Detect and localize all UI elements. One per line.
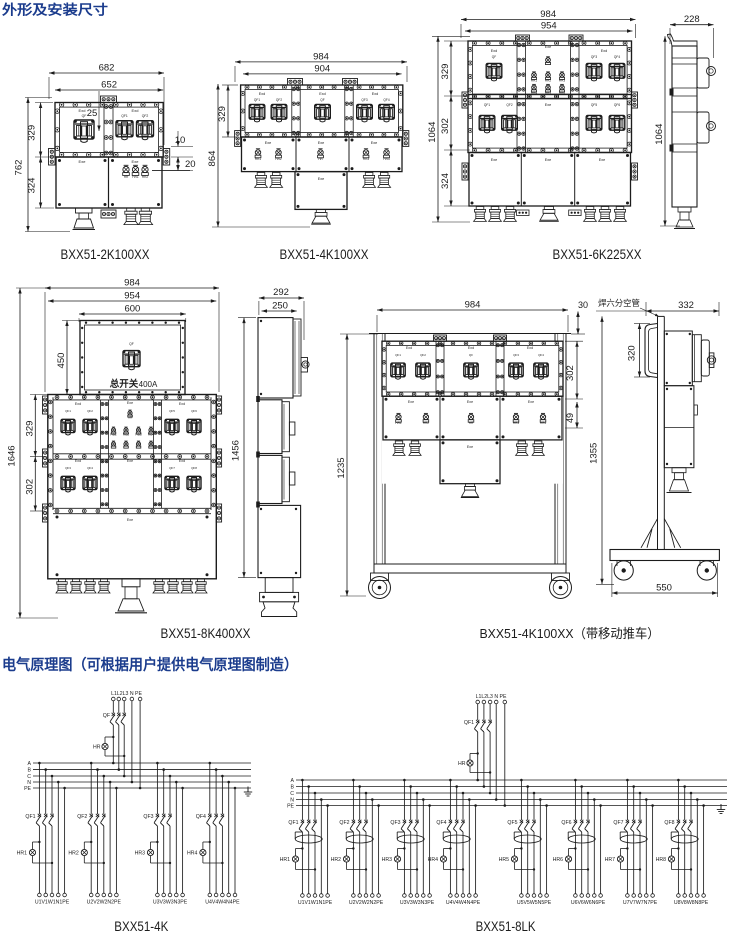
svg-text:U2V2W2N2PE: U2V2W2N2PE: [349, 900, 384, 906]
svg-text:HR2: HR2: [423, 421, 430, 425]
svg-text:QF: QF: [103, 713, 110, 719]
svg-text:25: 25: [87, 108, 98, 119]
svg-text:652: 652: [101, 80, 117, 91]
svg-text:HR5: HR5: [499, 857, 509, 863]
svg-text:HR1: HR1: [132, 175, 139, 179]
svg-text:HR2: HR2: [331, 857, 341, 863]
svg-text:QF3: QF3: [143, 814, 153, 820]
svg-text:HR6: HR6: [553, 857, 563, 863]
svg-text:Exe: Exe: [127, 518, 133, 522]
svg-text:外形及安装尺寸: 外形及安装尺寸: [2, 2, 108, 18]
svg-text:Exd: Exd: [319, 92, 326, 96]
svg-text:1235: 1235: [336, 457, 347, 478]
svg-text:BXX51-4K100XX: BXX51-4K100XX: [280, 246, 370, 262]
svg-text:电气原理图（可根据用户提供电气原理图制造）: 电气原理图（可根据用户提供电气原理图制造）: [2, 656, 298, 674]
svg-text:Exd: Exd: [75, 459, 81, 463]
svg-text:QF6: QF6: [561, 820, 571, 826]
svg-text:QF5: QF5: [507, 820, 517, 826]
svg-text:302: 302: [24, 479, 35, 495]
svg-text:1064: 1064: [654, 124, 665, 145]
svg-text:QF3: QF3: [390, 820, 400, 826]
svg-text:QF3: QF3: [65, 466, 71, 470]
svg-text:QF2: QF2: [420, 353, 426, 357]
svg-text:Exe: Exe: [528, 400, 534, 404]
svg-text:HR: HR: [93, 745, 101, 751]
svg-text:HR3: HR3: [559, 78, 566, 82]
svg-text:QF5: QF5: [169, 409, 175, 413]
svg-text:324: 324: [26, 178, 37, 194]
svg-text:BXX51-6K225XX: BXX51-6K225XX: [553, 246, 643, 262]
svg-text:A: A: [291, 778, 295, 784]
svg-text:Exd: Exd: [132, 108, 139, 113]
svg-text:HR4: HR4: [531, 91, 538, 95]
svg-text:QF4: QF4: [87, 466, 93, 470]
svg-text:HR5: HR5: [545, 91, 552, 95]
svg-text:QF3: QF3: [591, 55, 597, 59]
svg-text:QF1: QF1: [65, 409, 71, 413]
svg-text:QF6: QF6: [614, 103, 620, 107]
svg-text:Exe: Exe: [491, 158, 498, 162]
svg-text:QF2: QF2: [77, 814, 87, 820]
svg-text:1064: 1064: [427, 122, 438, 143]
svg-text:U4V4W4N4PE: U4V4W4N4PE: [446, 900, 481, 906]
svg-text:U1V1W1N1PE: U1V1W1N1PE: [298, 900, 333, 906]
svg-text:1646: 1646: [7, 445, 18, 466]
svg-text:HR4: HR4: [187, 851, 197, 857]
svg-text:QF4: QF4: [538, 353, 544, 357]
svg-text:Exe: Exe: [371, 141, 378, 145]
svg-text:HR8: HR8: [656, 857, 666, 863]
svg-text:BXX51-4K: BXX51-4K: [114, 918, 169, 932]
svg-text:QF1: QF1: [464, 720, 474, 726]
svg-text:Exd: Exd: [491, 49, 498, 53]
svg-text:302: 302: [565, 365, 576, 381]
svg-text:QF2: QF2: [87, 409, 93, 413]
svg-text:Exe: Exe: [132, 159, 140, 164]
svg-text:HB2: HB2: [123, 433, 129, 437]
svg-text:QF4: QF4: [383, 98, 389, 102]
svg-text:B: B: [291, 785, 295, 791]
svg-text:QF: QF: [492, 55, 496, 59]
svg-text:1456: 1456: [231, 440, 242, 461]
svg-text:QF4: QF4: [196, 814, 206, 820]
svg-text:C: C: [290, 791, 294, 797]
svg-text:Exe: Exe: [467, 445, 473, 449]
svg-text:HR1: HR1: [255, 157, 262, 161]
svg-text:BXX51-2K100XX: BXX51-2K100XX: [61, 246, 151, 262]
svg-text:QF1: QF1: [121, 114, 128, 118]
svg-text:HR1: HR1: [395, 421, 402, 425]
svg-text:QF3: QF3: [361, 98, 367, 102]
svg-text:HR2: HR2: [275, 157, 282, 161]
svg-text:U3V3W3N3PE: U3V3W3N3PE: [153, 900, 188, 906]
svg-text:Exd: Exd: [372, 92, 379, 96]
svg-text:B: B: [28, 768, 32, 774]
svg-text:984: 984: [465, 300, 481, 311]
svg-text:QF2: QF2: [142, 114, 149, 118]
svg-text:550: 550: [656, 583, 672, 594]
svg-text:HR3: HR3: [513, 421, 520, 425]
svg-text:Exd: Exd: [259, 92, 266, 96]
svg-text:HB3: HB3: [135, 433, 141, 437]
svg-text:10: 10: [175, 135, 186, 146]
svg-text:984: 984: [124, 278, 140, 289]
svg-text:HR2: HR2: [142, 175, 149, 179]
svg-text:320: 320: [627, 345, 638, 361]
svg-text:QF1: QF1: [288, 820, 298, 826]
svg-text:329: 329: [24, 421, 35, 437]
svg-text:HR2: HR2: [545, 78, 552, 82]
svg-text:HR: HR: [318, 157, 323, 161]
svg-text:HR3: HR3: [135, 851, 145, 857]
svg-text:302: 302: [440, 118, 451, 134]
svg-text:HR1: HR1: [280, 857, 290, 863]
svg-text:984: 984: [540, 9, 556, 20]
svg-text:QF8: QF8: [191, 466, 197, 470]
svg-text:L1L2L3 N PE: L1L2L3 N PE: [476, 694, 507, 700]
svg-text:49: 49: [565, 413, 575, 423]
svg-text:954: 954: [541, 21, 557, 32]
svg-text:HR: HR: [124, 175, 129, 179]
svg-text:Exd: Exd: [468, 346, 474, 350]
svg-text:Exe: Exe: [545, 45, 552, 49]
svg-text:Exd: Exd: [527, 346, 533, 350]
svg-text:L1L2L3 N PE: L1L2L3 N PE: [111, 691, 142, 697]
svg-text:QF7: QF7: [169, 466, 175, 470]
svg-text:30: 30: [578, 300, 588, 310]
svg-text:329: 329: [26, 125, 37, 141]
svg-text:762: 762: [14, 160, 25, 176]
svg-text:QF5: QF5: [591, 103, 597, 107]
svg-text:Exd: Exd: [601, 49, 608, 53]
svg-text:HR1: HR1: [17, 851, 27, 857]
svg-text:焊六分空管: 焊六分空管: [598, 298, 640, 308]
svg-text:Exe: Exe: [318, 177, 325, 181]
svg-text:400A: 400A: [139, 380, 158, 389]
svg-text:Exe: Exe: [265, 141, 272, 145]
svg-text:HB1: HB1: [110, 433, 116, 437]
svg-text:1355: 1355: [589, 443, 600, 464]
svg-text:Exe: Exe: [408, 400, 414, 404]
svg-text:292: 292: [273, 287, 289, 298]
svg-text:QF8: QF8: [664, 820, 674, 826]
svg-text:U2V2W2N2PE: U2V2W2N2PE: [87, 900, 122, 906]
svg-text:HR6: HR6: [559, 91, 566, 95]
svg-text:450: 450: [56, 353, 67, 369]
svg-text:PE: PE: [24, 786, 31, 792]
svg-text:QF1: QF1: [395, 353, 401, 357]
svg-text:BXX51-4K100XX（带移动推车）: BXX51-4K100XX（带移动推车）: [480, 626, 660, 641]
svg-text:329: 329: [440, 64, 451, 80]
svg-text:HR4: HR4: [383, 157, 390, 161]
svg-text:QF4: QF4: [436, 820, 446, 826]
svg-text:Exe: Exe: [127, 401, 133, 405]
svg-text:Exe: Exe: [545, 103, 552, 107]
svg-text:QF4: QF4: [614, 55, 620, 59]
svg-text:Exd: Exd: [179, 402, 185, 406]
svg-text:QF1: QF1: [254, 98, 260, 102]
svg-text:Exe: Exe: [599, 158, 606, 162]
svg-text:600: 600: [124, 304, 140, 315]
svg-text:250: 250: [272, 301, 288, 312]
svg-text:HR3: HR3: [363, 157, 370, 161]
svg-text:Exe: Exe: [318, 141, 325, 145]
svg-text:QF: QF: [469, 353, 473, 357]
svg-text:HR2: HR2: [68, 851, 78, 857]
svg-text:总开关: 总开关: [110, 378, 139, 390]
svg-text:HR: HR: [458, 761, 466, 767]
svg-text:A: A: [28, 761, 32, 767]
svg-text:U5V5W5N5PE: U5V5W5N5PE: [517, 900, 552, 906]
svg-text:BXX51-8K400XX: BXX51-8K400XX: [161, 625, 252, 641]
svg-text:HR4: HR4: [540, 421, 547, 425]
svg-text:864: 864: [207, 151, 218, 167]
svg-text:HR1: HR1: [531, 78, 538, 82]
svg-text:QF: QF: [82, 114, 87, 118]
svg-text:HR3: HR3: [382, 857, 392, 863]
svg-text:20: 20: [185, 159, 196, 170]
svg-text:Exe: Exe: [79, 159, 87, 164]
svg-text:QF2: QF2: [339, 820, 349, 826]
svg-text:QF: QF: [129, 342, 134, 346]
svg-text:984: 984: [313, 51, 329, 62]
svg-text:U1V1W1N1PE: U1V1W1N1PE: [35, 900, 70, 906]
svg-text:U3V3W3N3PE: U3V3W3N3PE: [400, 900, 435, 906]
svg-text:U4V4W4N4PE: U4V4W4N4PE: [205, 900, 240, 906]
svg-text:Exd: Exd: [406, 346, 412, 350]
svg-text:904: 904: [314, 63, 330, 74]
svg-text:HR: HR: [469, 421, 474, 425]
svg-text:QF3: QF3: [513, 353, 519, 357]
svg-text:HR7: HR7: [605, 857, 615, 863]
svg-text:U8V8W8N8PE: U8V8W8N8PE: [674, 900, 709, 906]
svg-text:HB4: HB4: [148, 433, 154, 437]
svg-text:HR4: HR4: [428, 857, 438, 863]
svg-text:QF1: QF1: [25, 814, 35, 820]
svg-text:228: 228: [684, 14, 700, 25]
svg-text:Exd: Exd: [179, 459, 185, 463]
svg-text:324: 324: [440, 173, 451, 189]
svg-text:682: 682: [99, 63, 115, 74]
svg-text:U6V6W6N6PE: U6V6W6N6PE: [571, 900, 606, 906]
svg-text:Exe: Exe: [127, 459, 133, 463]
svg-text:Exe: Exe: [467, 400, 473, 404]
svg-text:U7V7W7N7PE: U7V7W7N7PE: [623, 900, 658, 906]
svg-text:Exe: Exe: [545, 158, 552, 162]
svg-text:QF1: QF1: [484, 103, 490, 107]
svg-text:954: 954: [124, 291, 140, 302]
svg-text:Exd: Exd: [75, 402, 81, 406]
svg-text:HR: HR: [128, 416, 133, 420]
svg-text:QF2: QF2: [506, 103, 512, 107]
svg-text:329: 329: [217, 106, 228, 122]
svg-text:Exd: Exd: [79, 108, 86, 113]
svg-text:QF2: QF2: [276, 98, 282, 102]
svg-text:PE: PE: [287, 804, 294, 810]
svg-text:BXX51-8LK: BXX51-8LK: [476, 918, 537, 932]
svg-text:QF6: QF6: [191, 409, 197, 413]
svg-text:QF: QF: [320, 98, 324, 102]
svg-text:QF7: QF7: [613, 820, 623, 826]
svg-text:332: 332: [678, 300, 694, 311]
